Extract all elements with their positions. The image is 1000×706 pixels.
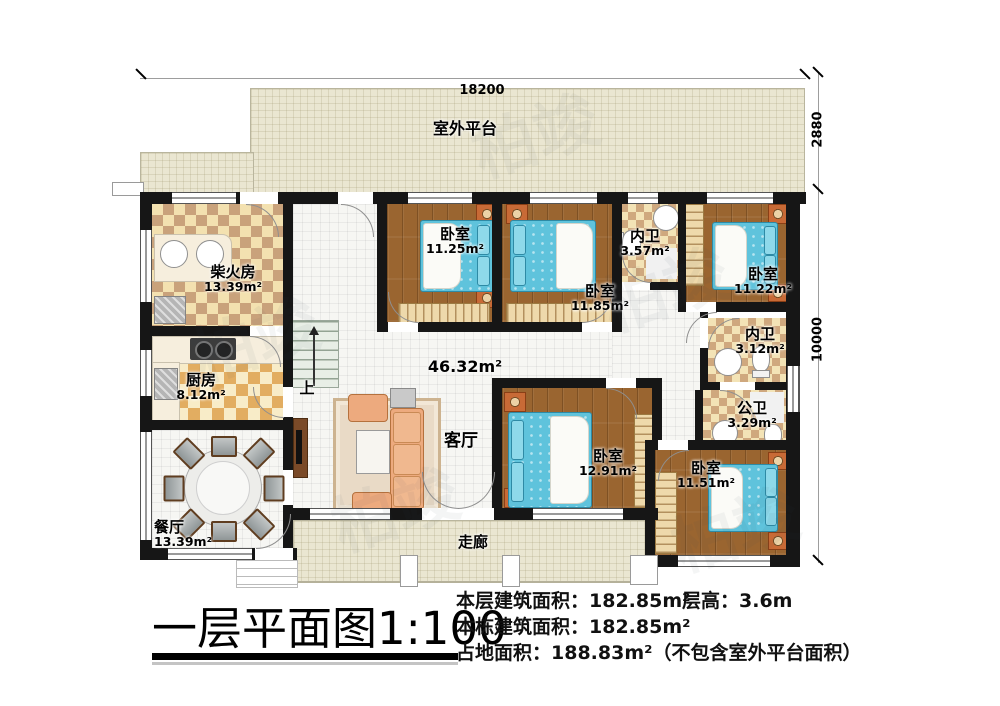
window xyxy=(533,508,623,520)
window xyxy=(678,555,770,567)
door-gap xyxy=(686,302,716,312)
armchair-top xyxy=(348,394,388,422)
corridor-edge xyxy=(293,581,645,583)
nightstand xyxy=(768,532,788,550)
window xyxy=(172,192,236,204)
pillow xyxy=(513,225,526,255)
room-label-dining: 餐厅 13.39m² xyxy=(150,519,218,549)
stairs-up-text: 上 xyxy=(294,380,320,396)
room-area: 11.25m² xyxy=(415,242,495,256)
room-area: 46.32m² xyxy=(420,358,510,375)
room-area: 3.57m² xyxy=(614,244,676,258)
wall-dining-right-top xyxy=(283,428,293,470)
door-gap xyxy=(582,322,612,332)
window xyxy=(530,192,597,204)
double-door-gap xyxy=(422,508,494,520)
pillow xyxy=(511,420,524,460)
nightstand xyxy=(768,204,788,224)
stat-floor-area: 本层建筑面积：182.85m² xyxy=(456,586,690,613)
label-living-area: 46.32m² xyxy=(420,358,510,375)
dimension-line-top xyxy=(140,78,806,79)
window xyxy=(168,548,252,560)
firewood-pot-1 xyxy=(160,240,188,268)
dining-table-top xyxy=(196,461,250,515)
room-label-corridor: 走廊 xyxy=(445,534,501,550)
dining-chair xyxy=(164,476,185,502)
room-name: 卧室 xyxy=(666,460,746,476)
outdoor-platform-floor xyxy=(250,88,805,196)
wall-br1291-right xyxy=(652,378,662,448)
window xyxy=(140,230,152,302)
label-stairs-up: 上 xyxy=(294,380,320,396)
plan-title: 一层平面图1:100 xyxy=(152,592,507,657)
room-label-br1291: 卧室 12.91m² xyxy=(568,448,648,478)
tv xyxy=(296,430,302,464)
room-name: 客厅 xyxy=(433,432,489,450)
stat-footprint-area: 占地面积：188.83m²（不包含室外平台面积） xyxy=(456,638,861,665)
wall-br-divider xyxy=(492,200,502,330)
corridor-pillar xyxy=(502,555,520,587)
window xyxy=(408,192,472,204)
pillow xyxy=(764,226,776,255)
door-gap xyxy=(283,387,293,417)
wall-kitchen-dining xyxy=(152,420,293,430)
floor-plan-canvas: 室外平台 柴火房 13.39m² 厨房 8.12m² 餐厅 13.39m² 46… xyxy=(0,0,1000,706)
room-label-br1185: 卧室 11.85m² xyxy=(558,283,642,313)
entry-steps xyxy=(236,560,298,588)
dining-chair xyxy=(264,476,285,502)
firewood-sink xyxy=(154,296,186,324)
title-underline-shadow xyxy=(152,662,458,665)
outdoor-platform-floor-left xyxy=(140,152,254,196)
room-label-br1125: 卧室 11.25m² xyxy=(415,226,495,256)
room-area: 11.85m² xyxy=(558,299,642,313)
room-label-br1122: 卧室 11.22m² xyxy=(727,266,799,296)
room-label-bath312: 内卫 3.12m² xyxy=(725,326,795,356)
room-name: 公卫 xyxy=(717,400,787,416)
sofa-cushion xyxy=(393,476,421,507)
dimension-platform-depth: 2880 xyxy=(811,96,826,164)
room-area: 12.91m² xyxy=(568,464,648,478)
room-area: 8.12m² xyxy=(166,388,236,402)
room-name: 室外平台 xyxy=(420,120,510,137)
side-table xyxy=(390,388,416,408)
door-gap xyxy=(338,192,373,204)
plan-title-text: 一层平面图 xyxy=(152,602,377,655)
room-name: 柴火房 xyxy=(192,264,274,280)
room-label-bath329: 公卫 3.29m² xyxy=(717,400,787,430)
room-label-br1151: 卧室 11.51m² xyxy=(666,460,746,490)
stat-building-area: 本栋建筑面积：182.85m² xyxy=(456,612,690,639)
room-area: 13.39m² xyxy=(154,535,218,549)
room-label-bath357: 内卫 3.57m² xyxy=(614,228,676,258)
title-underline xyxy=(152,653,458,660)
corridor-floor xyxy=(293,520,647,583)
bath-312-toilet-tank xyxy=(752,370,770,378)
room-name: 走廊 xyxy=(445,534,501,550)
wall-br1125-left xyxy=(377,200,387,330)
room-name: 卧室 xyxy=(558,283,642,299)
stat-floor-height: 层高：3.6m xyxy=(682,586,792,613)
room-area: 3.29m² xyxy=(717,416,787,430)
door-gap xyxy=(658,440,688,450)
sofa-cushion xyxy=(393,412,421,443)
stove-burner-2 xyxy=(215,341,233,359)
window xyxy=(787,366,800,412)
pillow xyxy=(513,256,526,286)
room-area: 11.22m² xyxy=(727,282,799,296)
corridor-pillar xyxy=(400,555,418,587)
dimension-house-depth: 10000 xyxy=(811,306,826,374)
pillow xyxy=(765,497,777,526)
room-name: 内卫 xyxy=(725,326,795,342)
wall-bath357-right xyxy=(678,200,686,290)
corridor-pillar xyxy=(630,555,658,585)
wall-br1291-left xyxy=(492,378,502,518)
room-name: 餐厅 xyxy=(154,519,218,535)
window xyxy=(707,192,773,204)
door-gap xyxy=(720,382,755,390)
coffee-table xyxy=(356,430,390,474)
room-area: 3.12m² xyxy=(725,342,795,356)
room-name: 内卫 xyxy=(614,228,676,244)
room-name: 卧室 xyxy=(727,266,799,282)
window xyxy=(140,350,152,396)
dining-chair xyxy=(211,436,237,457)
room-name: 卧室 xyxy=(415,226,495,242)
room-area: 13.39m² xyxy=(192,280,274,294)
wall-firewood-kitchen xyxy=(152,326,250,336)
door-gap xyxy=(388,322,418,332)
wall-br1291-top xyxy=(492,378,662,388)
dimension-top-width: 18200 xyxy=(437,83,527,98)
room-label-kitchen: 厨房 8.12m² xyxy=(166,372,236,402)
door-gap xyxy=(240,192,278,204)
stove-burner-1 xyxy=(195,341,213,359)
room-area: 11.51m² xyxy=(666,476,746,490)
stairs-arrow-head xyxy=(309,326,319,335)
blanket xyxy=(556,223,593,289)
nightstand xyxy=(504,392,526,412)
room-label-firewood: 柴火房 13.39m² xyxy=(192,264,274,294)
door-gap xyxy=(606,378,636,388)
door-gap xyxy=(255,548,293,560)
room-label-living: 客厅 xyxy=(433,432,489,450)
pillow xyxy=(765,468,777,497)
room-label-platform: 室外平台 xyxy=(420,120,510,137)
sofa-cushion xyxy=(393,444,421,475)
window xyxy=(310,508,390,520)
pillow xyxy=(511,462,524,502)
room-name: 卧室 xyxy=(568,448,648,464)
window xyxy=(628,192,658,204)
dimension-line-house xyxy=(818,192,819,563)
room-name: 厨房 xyxy=(166,372,236,388)
pillow xyxy=(477,256,490,286)
